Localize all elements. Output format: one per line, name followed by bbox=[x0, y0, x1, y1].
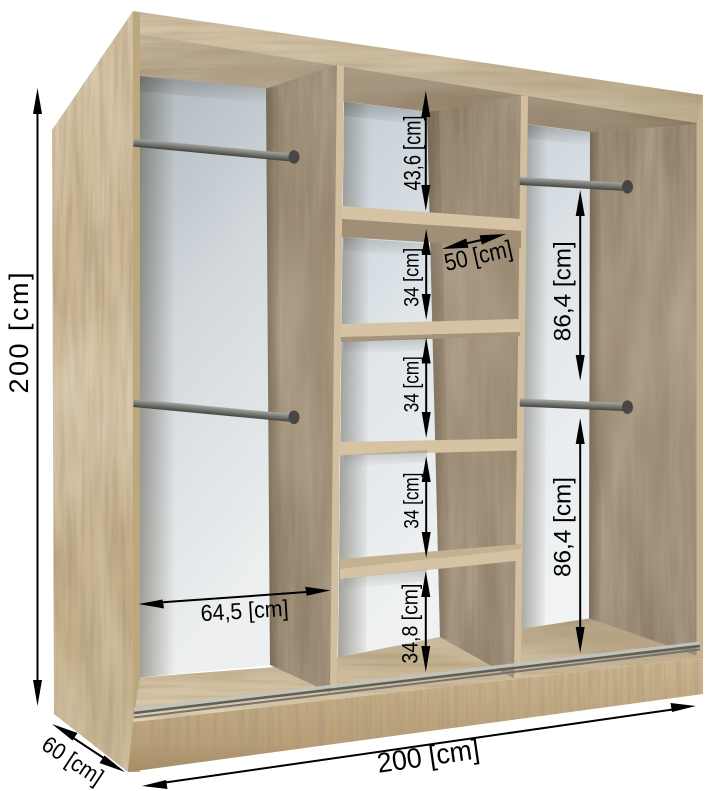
svg-text:34 [cm]: 34 [cm] bbox=[399, 356, 423, 412]
svg-text:34 [cm]: 34 [cm] bbox=[399, 248, 423, 307]
svg-text:43,6 [cm]: 43,6 [cm] bbox=[400, 116, 427, 191]
svg-text:86,4 [cm]: 86,4 [cm] bbox=[550, 477, 577, 577]
svg-text:86,4 [cm]: 86,4 [cm] bbox=[550, 241, 577, 341]
svg-text:34 [cm]: 34 [cm] bbox=[399, 473, 423, 529]
svg-text:64,5 [cm]: 64,5 [cm] bbox=[200, 595, 289, 626]
svg-text:34,8 [cm]: 34,8 [cm] bbox=[398, 584, 423, 664]
